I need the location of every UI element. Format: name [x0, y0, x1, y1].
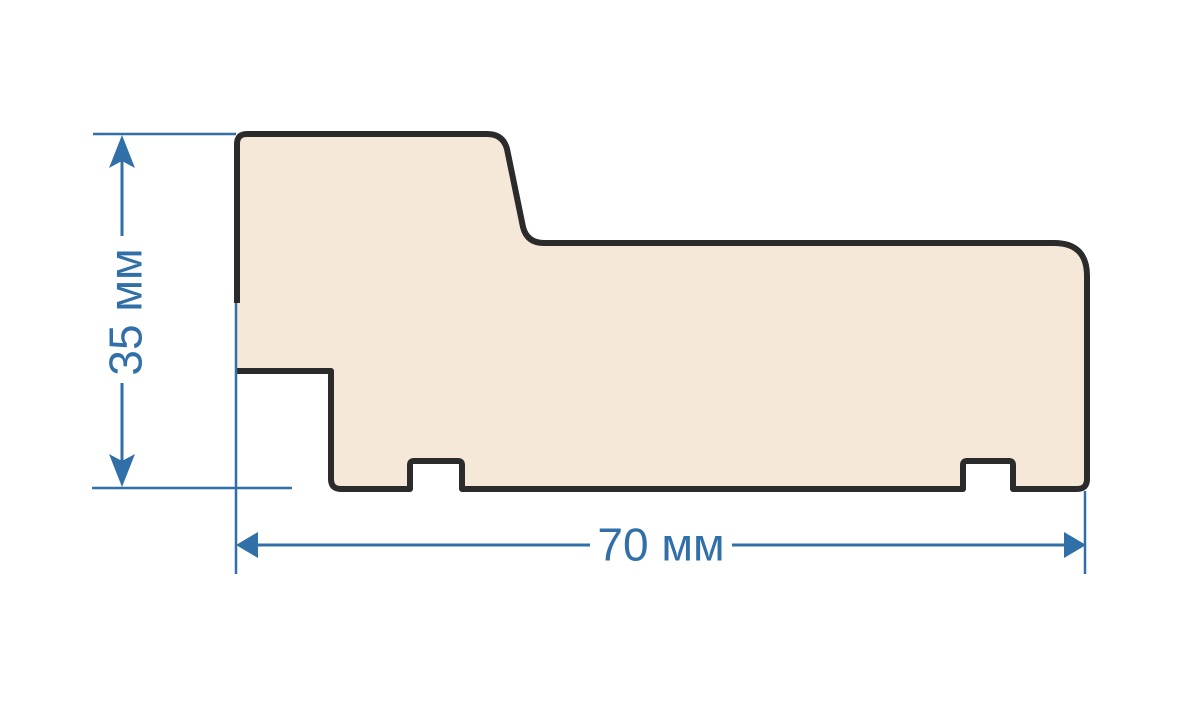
- height-dimension-label: 35 мм: [100, 248, 152, 375]
- profile-shape: [237, 134, 1087, 489]
- width-dimension-label: 70 мм: [597, 519, 724, 571]
- arrow-left-icon: [236, 532, 258, 558]
- arrow-right-icon: [1064, 532, 1086, 558]
- drawing-canvas: 35 мм 70 мм: [0, 0, 1184, 712]
- profile-drawing: 35 мм 70 мм: [0, 0, 1184, 712]
